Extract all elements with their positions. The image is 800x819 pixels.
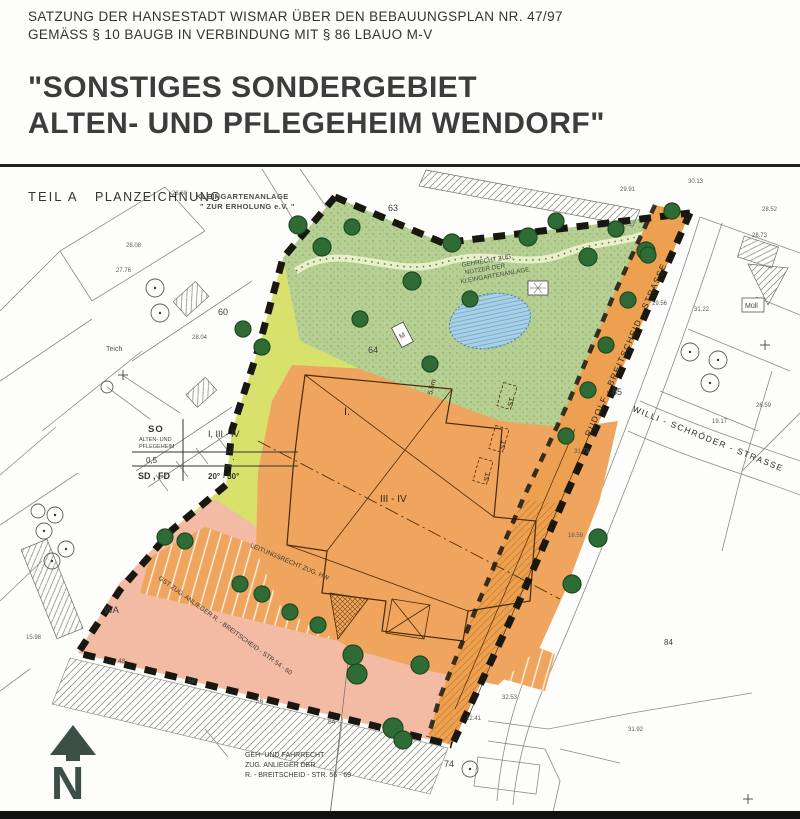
svg-text:R. - BREITSCHEID - STR. 56 - 6: R. - BREITSCHEID - STR. 56 - 69: [245, 772, 351, 779]
svg-text:ZUG. ANLIEGER DER: ZUG. ANLIEGER DER: [245, 762, 315, 769]
title-line-1: "SONSTIGES SONDERGEBIET: [28, 70, 790, 106]
schablone-floors: I, III - IV: [208, 429, 240, 439]
svg-text:26.59: 26.59: [756, 403, 772, 409]
teich-label: Teich: [106, 346, 122, 353]
playground-symbol: [528, 281, 548, 295]
parcel-56: 56: [256, 698, 264, 705]
svg-text:27.76: 27.76: [116, 268, 132, 274]
header-divider: [0, 164, 800, 167]
kleingarten-label-1: KLEINGARTENANLAGE: [196, 192, 289, 201]
schablone-art-l2: PFLEGEHEIM: [139, 444, 175, 450]
svg-text:31.73: 31.73: [574, 449, 590, 455]
svg-text:12.41: 12.41: [466, 716, 482, 722]
schablone-grz: 0,5: [146, 456, 158, 465]
schablone-art: SO: [148, 424, 164, 435]
svg-text:30.13: 30.13: [688, 179, 704, 185]
floors-III-IV-label: III - IV: [380, 494, 407, 505]
svg-text:28.08: 28.08: [126, 243, 142, 249]
north-arrow: N: [50, 725, 96, 809]
muell-symbol: Müll: [742, 298, 764, 312]
scanned-plan-page: SATZUNG DER HANSESTADT WISMAR ÜBER DEN B…: [0, 0, 800, 819]
svg-text:18.59: 18.59: [568, 533, 584, 539]
floors-I-label: I.: [344, 406, 350, 418]
svg-text:28.73: 28.73: [752, 233, 768, 239]
svg-text:15.98: 15.98: [26, 635, 42, 641]
parcel-84: 84: [664, 638, 673, 647]
parcel-54: 54: [328, 719, 336, 726]
muell-label: Müll: [745, 303, 758, 310]
scan-edge-bar: [0, 811, 800, 819]
svg-text:28.52: 28.52: [762, 207, 778, 213]
parcel-58: 58: [188, 678, 196, 685]
svg-text:29.91: 29.91: [620, 187, 636, 193]
svg-text:28.04: 28.04: [192, 335, 208, 341]
schablone-pitch: 20° - 30°: [208, 472, 239, 481]
parcel-64: 64: [368, 345, 378, 355]
north-letter: N: [51, 757, 84, 809]
document-header: SATZUNG DER HANSESTADT WISMAR ÜBER DEN B…: [28, 8, 790, 142]
svg-text:19.17: 19.17: [712, 419, 728, 425]
parcel-60: 60: [218, 307, 228, 317]
title-line-2: ALTEN- UND PFLEGEHEIM WENDORF": [28, 106, 790, 142]
svg-text:31.22: 31.22: [694, 307, 710, 313]
wa-zone-label: WA: [104, 605, 120, 616]
svg-text:32.53: 32.53: [502, 695, 518, 701]
parcel-63: 63: [388, 203, 398, 213]
schablone-roof: SD , FD: [138, 471, 171, 481]
parcel-48: 48: [118, 658, 126, 665]
satzung-line: SATZUNG DER HANSESTADT WISMAR ÜBER DEN B…: [28, 8, 790, 26]
street-willi-label: WILLI - SCHRÖDER - STRASSE: [631, 404, 785, 474]
kleingarten-label-2: " ZUR ERHOLUNG e.V. ": [200, 202, 295, 211]
site-plan-svg: Müll M TEIL A PLANZEICHNUNG KLEINGARTENA…: [0, 169, 800, 819]
schablone-art-l1: ALTEN- UND: [139, 437, 172, 443]
svg-text:31.92: 31.92: [628, 727, 644, 733]
svg-text:28.60: 28.60: [172, 191, 188, 197]
parcel-74: 74: [444, 759, 454, 769]
svg-text:29.56: 29.56: [652, 301, 668, 307]
gemaess-line: GEMÄSS § 10 BAUGB IN VERBINDUNG MIT § 86…: [28, 26, 790, 44]
svg-text:GEH- UND FAHRRECHT: GEH- UND FAHRRECHT: [245, 752, 325, 759]
teil-a-label: TEIL A: [28, 189, 79, 204]
schablone-dot: ·: [232, 454, 235, 464]
site-plan-map: Müll M TEIL A PLANZEICHNUNG KLEINGARTENA…: [0, 169, 800, 819]
